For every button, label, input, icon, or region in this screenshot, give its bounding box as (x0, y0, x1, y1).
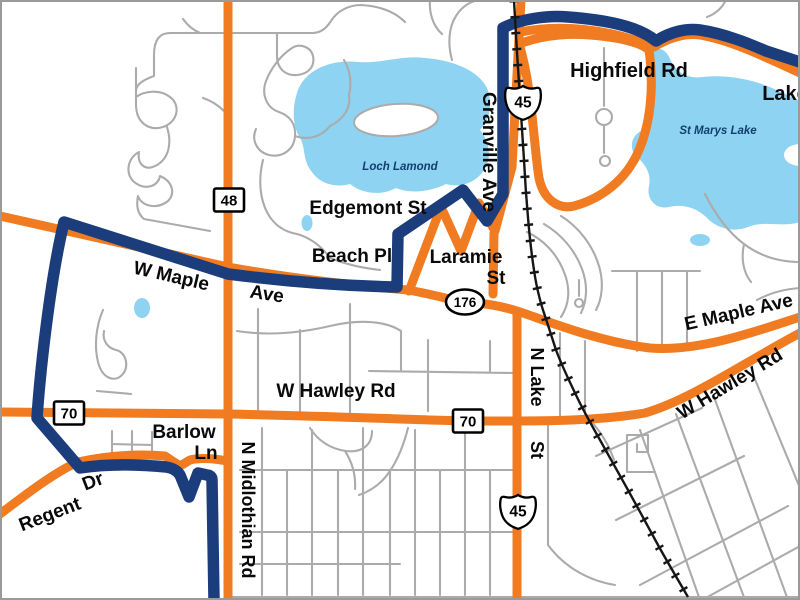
road-label-edgemont-st: Edgemont St (309, 198, 427, 219)
pond (690, 234, 710, 246)
water-label-st-marys-lake: St Marys Lake (679, 125, 757, 137)
road-label-n-lake: N Lake (527, 347, 547, 406)
road-label-laramie-st: St (487, 268, 507, 289)
shield-number: 70 (61, 406, 78, 423)
route-shield-70: 70 (453, 410, 483, 433)
road-label-barlow-ln: Ln (194, 443, 217, 464)
route-shield-176: 176 (446, 290, 484, 315)
shield-number: 45 (514, 95, 532, 112)
shield-number: 70 (460, 414, 477, 431)
road-label-n-midlothian-rd: N Midlothian Rd (238, 442, 258, 579)
road-label-w-hawley-rd-west: W Hawley Rd (276, 381, 395, 402)
shield-number: 45 (509, 504, 527, 521)
pond (134, 298, 150, 318)
road-label-lake-edge: Lake (762, 83, 800, 105)
road-label-granville-ave: Granville Ave (478, 92, 499, 212)
map-canvas[interactable]: 4870701764545 Highfield RdLakeGranville … (0, 0, 800, 600)
road-label-beach-pl: Beach Pl (312, 246, 392, 267)
shield-number: 176 (454, 295, 477, 310)
shield-number: 48 (221, 193, 238, 210)
route-shield-48: 48 (214, 189, 244, 212)
water-label-loch-lamond: Loch Lamond (362, 161, 438, 173)
road-label-n-lake-st: St (527, 441, 547, 459)
road-label-barlow: Barlow (152, 422, 216, 443)
route-shield-70: 70 (54, 402, 84, 425)
road-label-highfield-rd: Highfield Rd (570, 60, 688, 82)
road-label-laramie: Laramie (430, 247, 503, 268)
